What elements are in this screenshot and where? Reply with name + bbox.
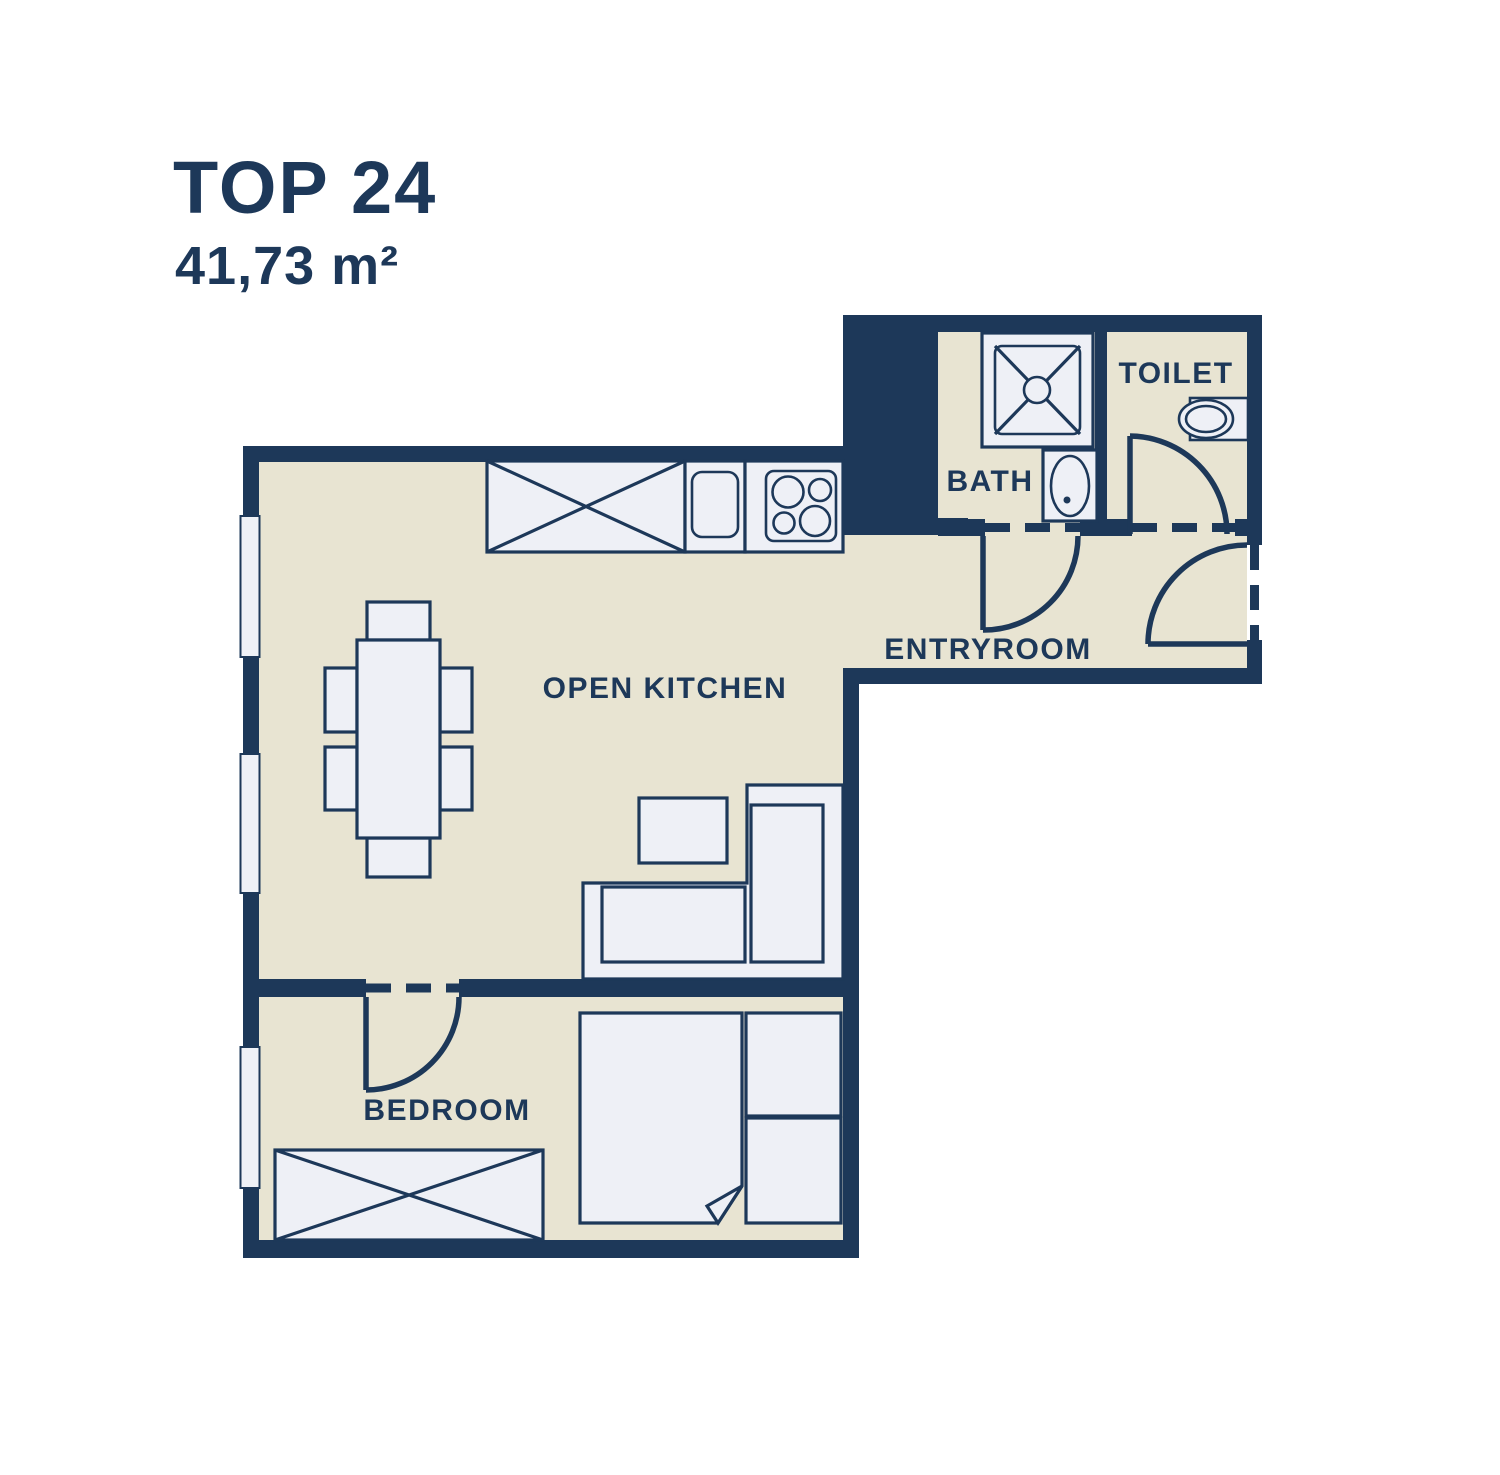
kitchen-sink-basin xyxy=(692,472,738,537)
bath-toilet-top-wall xyxy=(843,315,1262,332)
kitchen-bedroom-wall-right xyxy=(459,979,843,997)
shaft-block xyxy=(843,315,938,535)
shower-drain xyxy=(1024,377,1050,403)
sofa-cushion-right xyxy=(751,805,823,962)
entryroom-bottom-wall xyxy=(843,668,1262,684)
washbasin-bowl xyxy=(1051,456,1089,516)
kitchen-window-2 xyxy=(241,754,260,893)
chair-bottom xyxy=(367,838,430,877)
bedroom-window xyxy=(241,1047,260,1188)
right-wall-lower xyxy=(843,668,859,1258)
bedroom-label: BEDROOM xyxy=(363,1094,530,1127)
windows xyxy=(241,516,260,1188)
burner-bottom-left xyxy=(774,513,795,534)
chair-left-1 xyxy=(325,668,357,732)
bottom-outer-wall xyxy=(243,1240,859,1258)
open-kitchen-label: OPEN KITCHEN xyxy=(543,672,788,705)
kitchen-counter xyxy=(487,461,843,552)
chair-right-1 xyxy=(440,668,472,732)
kitchen-window-1 xyxy=(241,516,260,657)
burner-bottom-right xyxy=(800,506,830,536)
right-outer-wall-below-entry xyxy=(1247,640,1262,684)
bed-pillow-bottom xyxy=(746,1118,841,1223)
chair-right-2 xyxy=(440,747,472,810)
toilet-label: TOILET xyxy=(1118,357,1233,390)
entryroom-label: ENTRYROOM xyxy=(884,633,1091,666)
chair-top xyxy=(367,602,430,640)
burner-top-right xyxy=(809,479,831,501)
chair-left-2 xyxy=(325,747,357,810)
toilet-fixtures xyxy=(1179,398,1248,440)
bath-label: BATH xyxy=(946,465,1033,498)
sofa-cushion-bottom xyxy=(602,887,745,962)
toilet-bottom-wall-right xyxy=(1235,519,1247,536)
bed-pillow-top xyxy=(746,1013,841,1116)
kitchen-bedroom-wall-left xyxy=(243,979,366,997)
burner-top-left xyxy=(773,477,804,508)
bath-bottom-wall-left xyxy=(938,519,985,536)
bed-blanket xyxy=(580,1013,742,1223)
toilet-bowl-inner xyxy=(1186,406,1226,432)
apartment-area: 41,73 m² xyxy=(175,236,399,296)
page-title: TOP 24 xyxy=(173,146,437,229)
coffee-table xyxy=(639,798,727,863)
washbasin-drain xyxy=(1064,497,1071,504)
floorplan-page: TOP 24 41,73 m² xyxy=(0,0,1500,1475)
dining-table xyxy=(357,640,440,838)
floorplan-svg: TOP 24 41,73 m² xyxy=(0,0,1500,1475)
